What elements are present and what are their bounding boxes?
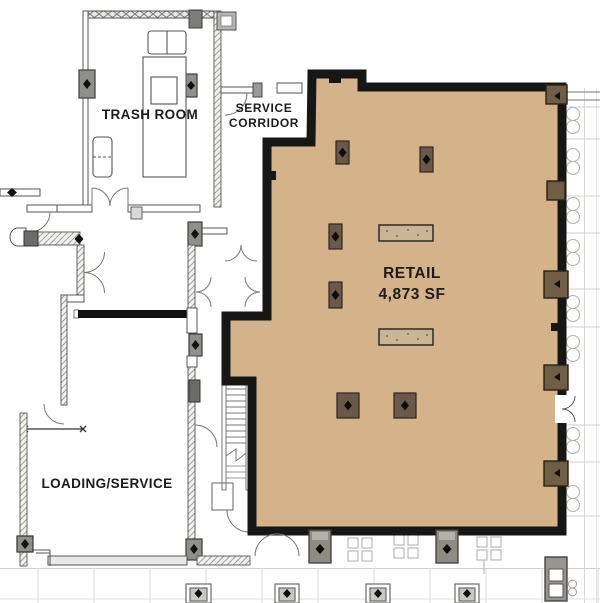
door-swing-arc	[92, 188, 128, 206]
corridors	[0, 188, 260, 566]
loading-service-room	[17, 245, 250, 566]
door-swing-arc	[44, 404, 64, 424]
trash-equipment	[93, 31, 186, 177]
door-swing-arc	[196, 277, 260, 307]
sidewalk-column	[186, 584, 479, 603]
floor-plan-svg: TRASH ROOM SERVICE CORRIDOR RETAIL 4,873…	[0, 0, 600, 603]
door-swing-arc	[30, 212, 50, 232]
floor-plan: TRASH ROOM SERVICE CORRIDOR RETAIL 4,873…	[0, 0, 600, 603]
trash-room-right-wall	[214, 11, 221, 207]
door-swing-arc	[225, 245, 257, 261]
chair-pair-icon	[567, 108, 580, 512]
door-opening	[555, 395, 568, 423]
trash-room-label: TRASH ROOM	[102, 107, 198, 122]
display-fixture	[379, 329, 433, 345]
entry-door-arcs	[255, 534, 299, 556]
entry-step	[33, 550, 50, 566]
door-swing-arc	[195, 425, 217, 447]
stairs	[212, 383, 250, 532]
kiosk	[545, 557, 577, 601]
stair-treads	[226, 389, 246, 443]
retail-area-label: 4,873 SF	[379, 286, 446, 303]
loading-service-label: LOADING/SERVICE	[41, 476, 172, 491]
stair-break-line	[226, 449, 246, 461]
loading-right-wall	[188, 245, 195, 308]
retail-space	[226, 74, 575, 556]
display-fixture	[379, 225, 433, 241]
chair-pair-icon	[569, 580, 577, 596]
trash-room-left-wall	[83, 11, 88, 211]
service-corridor-label-line2: CORRIDOR	[229, 116, 299, 130]
service-corridor-label-line1: SERVICE	[236, 101, 293, 115]
door-swing-arc	[84, 252, 105, 293]
loading-top-wall	[78, 310, 188, 318]
exterior-columns	[186, 530, 479, 603]
retail-label: RETAIL	[383, 265, 441, 282]
gate-line	[22, 426, 86, 432]
door-swing-arc	[227, 510, 249, 532]
loading-bottom-wall	[48, 556, 187, 565]
outdoor-seating-right	[566, 107, 600, 516]
wall-column	[547, 181, 565, 200]
